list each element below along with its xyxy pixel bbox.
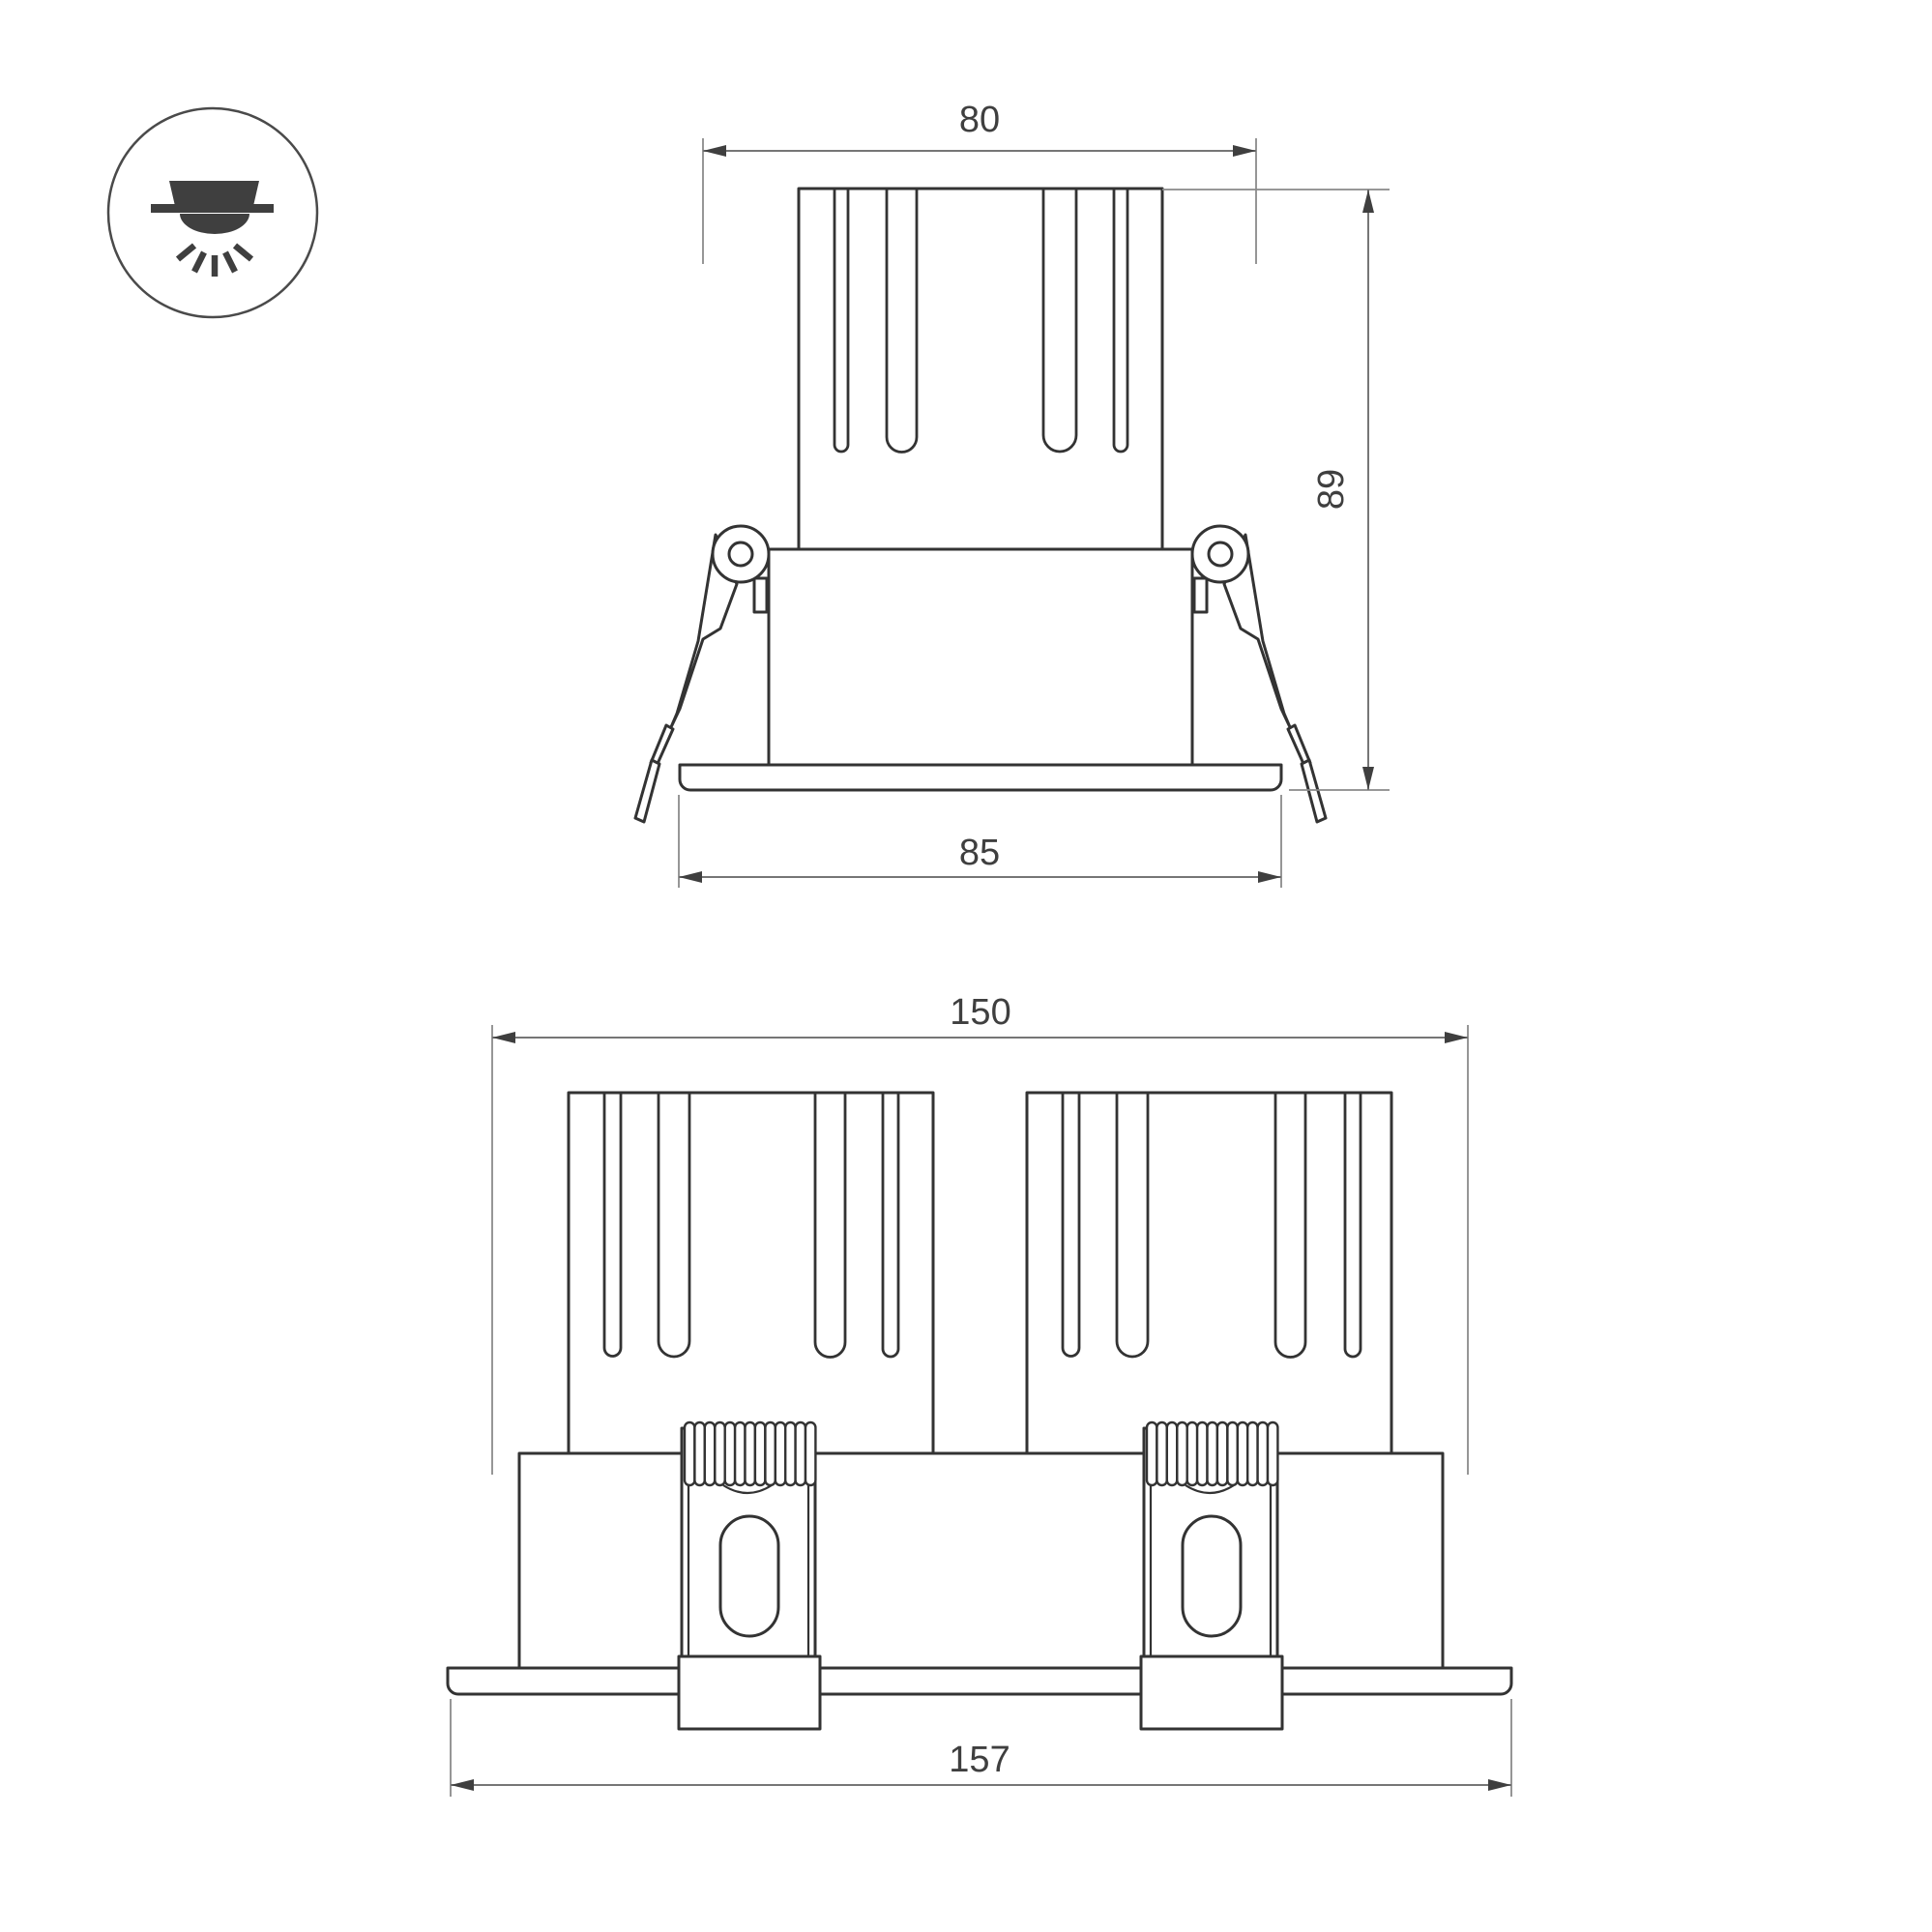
fin-slot — [1275, 1093, 1305, 1358]
icon-light-rays — [178, 246, 251, 277]
clip-tab — [754, 578, 767, 612]
heatsink-left-fins — [604, 1093, 898, 1358]
dimension-label-85: 85 — [959, 833, 1000, 873]
recessed-downlight-icon — [108, 108, 317, 317]
ceiling-flange — [680, 765, 1281, 790]
dimension-top-width: 150 — [492, 992, 1468, 1475]
fin-slot — [1063, 1093, 1079, 1357]
fin-slot — [887, 189, 917, 452]
heatsink-fins — [834, 189, 1127, 452]
dimension-flange-width: 157 — [451, 1699, 1511, 1797]
trim-body — [769, 549, 1192, 765]
spring-clip-right — [1192, 526, 1326, 822]
technical-drawing-page: 80 89 85 — [0, 0, 1932, 1932]
heatsink-right-fins — [1063, 1093, 1361, 1358]
spring-mechanism-right — [1141, 1422, 1282, 1729]
adjustment-slot — [720, 1516, 778, 1636]
single-module-view: 80 89 85 — [635, 100, 1390, 888]
twin-module-view: 150 157 — [448, 992, 1511, 1797]
housing-body — [519, 1453, 1443, 1668]
icon-ceiling-flange — [151, 204, 274, 213]
fin-slot — [659, 1093, 689, 1357]
dimension-height: 89 — [1162, 190, 1390, 790]
drawing-canvas: 80 89 85 — [0, 0, 1932, 1932]
fin-slot — [1117, 1093, 1148, 1357]
mechanism-foot-block — [679, 1656, 820, 1729]
fin-slot — [883, 1093, 898, 1357]
spring-clip-left — [635, 526, 769, 822]
dimension-label-89: 89 — [1311, 469, 1352, 510]
dimension-label-150: 150 — [950, 992, 1010, 1033]
fin-slot — [604, 1093, 621, 1357]
dimension-flange-width: 85 — [679, 795, 1281, 888]
heatsink-right — [1027, 1093, 1391, 1453]
fin-slot — [1114, 189, 1127, 452]
dimension-label-80: 80 — [959, 100, 1000, 140]
clip-pivot — [713, 526, 769, 582]
mechanism-foot-block — [1141, 1656, 1282, 1729]
clip-tab — [1194, 578, 1207, 612]
adjustment-slot — [1183, 1516, 1241, 1636]
heatsink — [799, 189, 1162, 549]
coil-spring — [685, 1422, 815, 1485]
dimension-top-width: 80 — [703, 100, 1256, 264]
spring-mechanism-left — [679, 1422, 820, 1729]
heatsink-left — [569, 1093, 933, 1453]
fin-slot — [1043, 189, 1076, 452]
ceiling-flange — [448, 1668, 1511, 1694]
coil-spring — [1147, 1422, 1277, 1485]
fin-slot — [1345, 1093, 1361, 1357]
fin-slot — [815, 1093, 845, 1358]
icon-light-dome — [180, 214, 249, 234]
clip-leaf-tip — [635, 760, 659, 822]
dimension-label-157: 157 — [949, 1740, 1010, 1780]
clip-leaf-tip — [1302, 760, 1326, 822]
fin-slot — [834, 189, 848, 452]
clip-pivot — [1192, 526, 1248, 582]
icon-lamp-body — [169, 181, 259, 206]
